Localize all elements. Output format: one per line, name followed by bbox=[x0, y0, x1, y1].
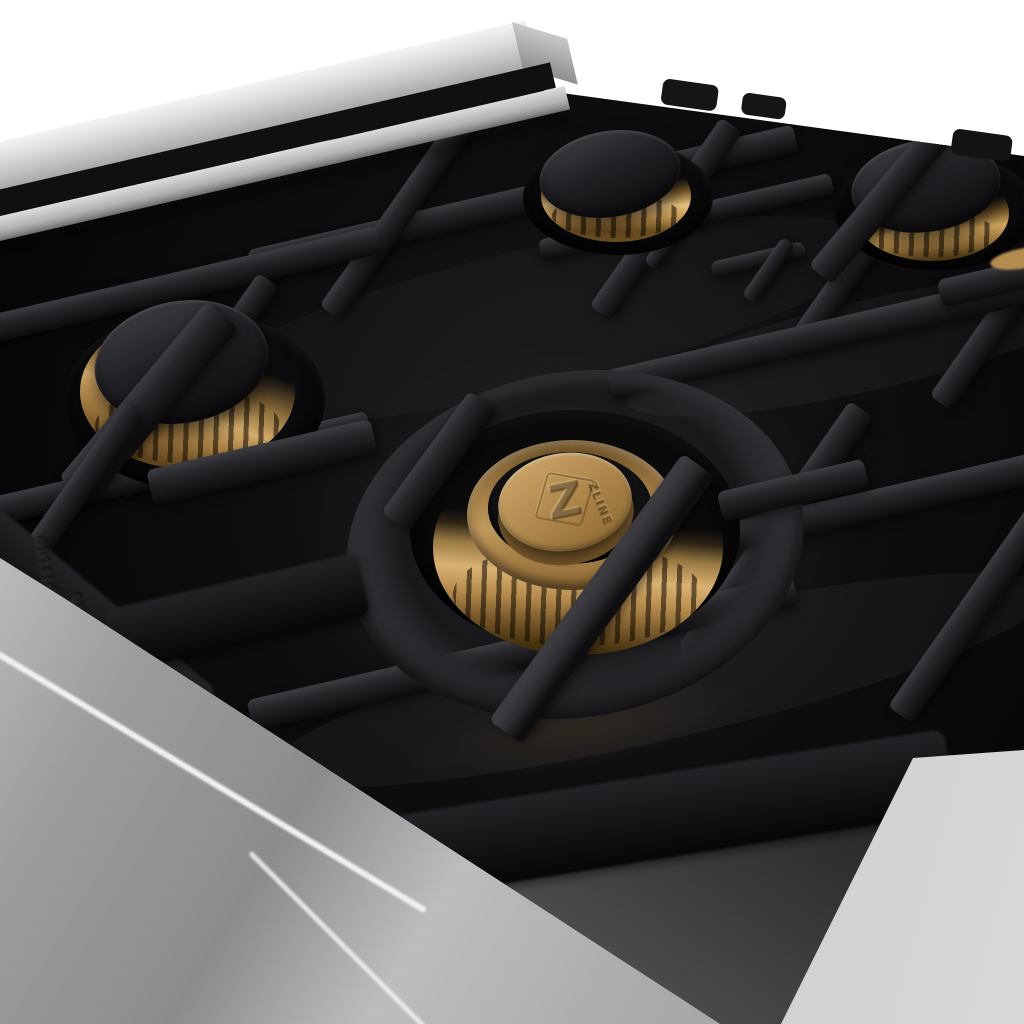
grate-silhouette-bump bbox=[740, 92, 787, 120]
product-photo: Z ZLINE outside outside bbox=[0, 0, 1024, 1024]
brand-logo-letter: Z bbox=[546, 474, 583, 527]
brand-logo-text: ZLINE bbox=[586, 480, 615, 527]
grate-silhouette-bump bbox=[660, 78, 719, 112]
